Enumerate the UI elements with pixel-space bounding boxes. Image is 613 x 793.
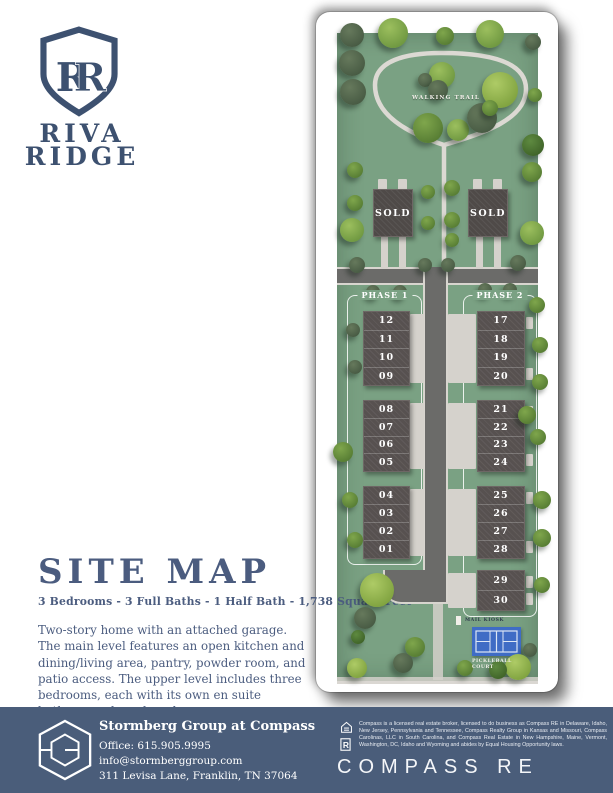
tree-icon bbox=[445, 233, 459, 247]
home-description: Two-story home with an attached garage. … bbox=[38, 622, 306, 720]
tree-icon bbox=[339, 50, 365, 76]
site-map-illustration: WALKING TRAIL PHASE 1 PHASE 2 SOLD SOLD … bbox=[337, 33, 538, 681]
lot-number: 17 bbox=[478, 312, 524, 331]
tree-icon bbox=[347, 532, 363, 548]
lot-number: 06 bbox=[364, 437, 409, 455]
tree-icon bbox=[447, 119, 469, 141]
tree-icon bbox=[532, 337, 548, 353]
tree-icon bbox=[522, 162, 542, 182]
tree-icon bbox=[457, 660, 473, 676]
lot-number: 01 bbox=[364, 541, 409, 558]
patio-pad bbox=[526, 593, 533, 605]
patio-pad bbox=[526, 317, 533, 329]
tree-icon bbox=[347, 162, 363, 178]
sidewalk-south bbox=[433, 604, 443, 680]
driveway-stub bbox=[399, 236, 406, 269]
driveway-pad bbox=[448, 573, 476, 608]
phase2-label: PHASE 2 bbox=[472, 290, 527, 300]
tree-icon bbox=[342, 492, 358, 508]
phase1-label: PHASE 1 bbox=[357, 290, 412, 300]
equal-housing-icon bbox=[340, 721, 353, 733]
tree-icon bbox=[418, 258, 432, 272]
lot-number: 28 bbox=[478, 541, 524, 558]
lot-number: 02 bbox=[364, 523, 409, 541]
sold-building-right: SOLD bbox=[468, 189, 508, 237]
tree-icon bbox=[518, 406, 536, 424]
driveway-pad bbox=[410, 403, 424, 469]
lot-number: 23 bbox=[478, 437, 524, 455]
stormberg-group-logo-icon bbox=[36, 719, 94, 781]
tree-icon bbox=[532, 374, 548, 390]
lot-number: 08 bbox=[364, 401, 409, 419]
pickleball-court-label: PICKLEBALL COURT bbox=[472, 659, 512, 670]
lot-number: 05 bbox=[364, 454, 409, 471]
lot-number: 22 bbox=[478, 419, 524, 437]
svg-text:R: R bbox=[343, 740, 349, 750]
footer: Stormberg Group at Compass Office: 615.9… bbox=[0, 707, 613, 793]
tree-icon bbox=[351, 630, 365, 644]
tree-icon bbox=[444, 180, 460, 196]
tree-icon bbox=[529, 297, 545, 313]
driveway-pad bbox=[410, 314, 424, 383]
tree-icon bbox=[436, 27, 454, 45]
lot-number: 27 bbox=[478, 523, 524, 541]
realtor-icon: R bbox=[340, 738, 351, 751]
tree-icon bbox=[533, 491, 551, 509]
team-name: Stormberg Group at Compass bbox=[99, 719, 315, 734]
tree-icon bbox=[347, 658, 367, 678]
patio-pad bbox=[526, 576, 533, 588]
building-block: 25262728 bbox=[477, 486, 525, 559]
lot-number: 26 bbox=[478, 505, 524, 523]
lot-number: 18 bbox=[478, 331, 524, 350]
driveway-pad bbox=[410, 489, 424, 556]
lot-number: 10 bbox=[364, 349, 409, 368]
svg-text:R: R bbox=[74, 55, 108, 101]
tree-icon bbox=[413, 113, 443, 143]
tree-icon bbox=[421, 216, 435, 230]
tree-icon bbox=[340, 23, 364, 47]
tree-icon bbox=[441, 258, 455, 272]
lot-number: 19 bbox=[478, 349, 524, 368]
building-block: 08070605 bbox=[363, 400, 410, 472]
walking-trail-label: WALKING TRAIL bbox=[412, 95, 480, 101]
building-block: 04030201 bbox=[363, 486, 410, 559]
tree-icon bbox=[360, 573, 394, 607]
patio-pad bbox=[526, 454, 533, 466]
tree-icon bbox=[534, 577, 550, 593]
page-title: SITE MAP bbox=[38, 552, 271, 592]
tree-icon bbox=[421, 185, 435, 199]
building-block: 17181920 bbox=[477, 311, 525, 386]
brand-name: RIVA RIDGE bbox=[0, 122, 160, 168]
tree-icon bbox=[333, 442, 353, 462]
mail-kiosk-icon bbox=[456, 616, 461, 625]
street-vertical bbox=[423, 267, 448, 604]
tree-icon bbox=[520, 221, 544, 245]
tree-icon bbox=[510, 255, 526, 271]
lot-number: 29 bbox=[478, 571, 524, 591]
tree-icon bbox=[528, 88, 542, 102]
lot-number: 03 bbox=[364, 505, 409, 523]
tree-icon bbox=[476, 20, 504, 48]
shield-logo-icon: R R bbox=[38, 24, 120, 120]
driveway-pad bbox=[448, 314, 476, 383]
lot-number: 24 bbox=[478, 454, 524, 471]
email: info@stormberggroup.com bbox=[99, 754, 298, 769]
office-phone: Office: 615.905.9995 bbox=[99, 739, 298, 754]
tree-icon bbox=[347, 195, 363, 211]
driveway-pad bbox=[448, 489, 476, 556]
driveway-pad bbox=[448, 403, 476, 469]
tree-icon bbox=[530, 429, 546, 445]
tree-icon bbox=[482, 100, 498, 116]
lot-number: 09 bbox=[364, 368, 409, 386]
tree-icon bbox=[349, 257, 365, 273]
path-bottom bbox=[337, 677, 538, 684]
site-map-card: WALKING TRAIL PHASE 1 PHASE 2 SOLD SOLD … bbox=[316, 12, 558, 692]
tree-icon bbox=[340, 79, 366, 105]
driveway-stub bbox=[494, 236, 501, 269]
contact-block: Office: 615.905.9995 info@stormberggroup… bbox=[99, 739, 298, 784]
tree-icon bbox=[444, 212, 460, 228]
lot-number: 20 bbox=[478, 368, 524, 386]
lot-number: 11 bbox=[364, 331, 409, 350]
lot-number: 25 bbox=[478, 487, 524, 505]
legal-disclaimer: Compass is a licensed real estate broker… bbox=[359, 721, 607, 750]
tree-icon bbox=[346, 323, 360, 337]
tree-icon bbox=[522, 134, 544, 156]
legal-icons: R bbox=[340, 721, 354, 756]
mail-kiosk-label: MAIL KIOSK bbox=[465, 618, 504, 623]
building-block: 2930 bbox=[477, 570, 525, 611]
driveway-stub bbox=[381, 236, 388, 269]
tree-icon bbox=[393, 653, 413, 673]
lot-number: 04 bbox=[364, 487, 409, 505]
tree-icon bbox=[378, 18, 408, 48]
address: 311 Levisa Lane, Franklin, TN 37064 bbox=[99, 769, 298, 784]
patio-pad bbox=[526, 492, 533, 504]
tree-icon bbox=[523, 643, 537, 657]
sold-building-left: SOLD bbox=[373, 189, 413, 237]
tree-icon bbox=[525, 34, 541, 50]
driveway-stub bbox=[476, 236, 483, 269]
compass-re-wordmark: COMPASS RE bbox=[337, 756, 539, 779]
court-lines-icon bbox=[472, 627, 521, 656]
lot-number: 07 bbox=[364, 419, 409, 437]
tree-icon bbox=[354, 607, 376, 629]
tree-icon bbox=[533, 529, 551, 547]
lot-number: 30 bbox=[478, 591, 524, 610]
tree-icon bbox=[348, 360, 362, 374]
patio-pad bbox=[526, 541, 533, 553]
tree-icon bbox=[340, 218, 364, 242]
lot-number: 12 bbox=[364, 312, 409, 331]
brand-name-line2: RIDGE bbox=[0, 145, 160, 168]
pickleball-court bbox=[472, 627, 521, 656]
building-block: 12111009 bbox=[363, 311, 410, 386]
